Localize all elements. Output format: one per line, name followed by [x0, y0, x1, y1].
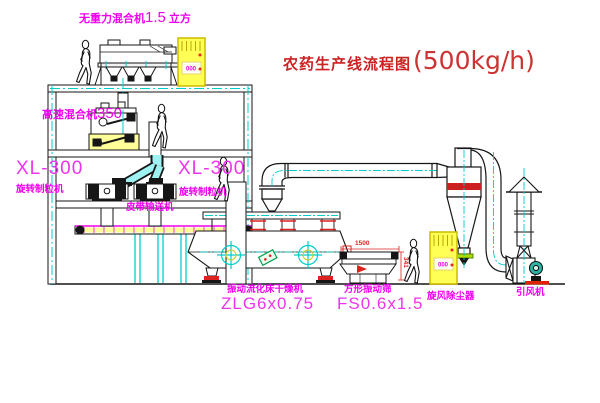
person-figure [77, 40, 92, 84]
label-fan: 引风机 [516, 288, 545, 298]
dryer-ports [250, 219, 336, 231]
granulator-chute-left [101, 208, 113, 226]
title-text: 农药生产线流程图 [283, 53, 411, 74]
page-title: 农药生产线流程图 (500kg/h) [283, 46, 535, 75]
dim-sieve-width: 1500 [355, 240, 369, 247]
label-high-speed-mixer: 高速混合机350 [42, 106, 122, 121]
label-granulator-left-model: XL-300 [16, 159, 83, 178]
granulator-left [86, 178, 128, 202]
fluid-bed-dryer [188, 212, 348, 283]
dim-sieve-height: 341 [402, 257, 409, 268]
cabinet-display: 000 [186, 67, 197, 73]
label-dryer-model: ZLG6x0.75 [221, 295, 314, 312]
cad-canvas: 000 000 农药生产线流程图 (500kg/h) 无重力混合机1.5 立方 … [0, 0, 600, 403]
elevator-column [226, 182, 246, 284]
label-granulator-right-name: 旋转制粒机 [179, 188, 227, 198]
gravity-free-mixer [95, 40, 178, 85]
induced-draft-fan [506, 246, 549, 285]
square-sieve [340, 246, 404, 283]
title-capacity: (500kg/h) [413, 46, 535, 75]
label-gravity-mixer: 无重力混合机1.5 立方 [79, 10, 191, 25]
cabinet-display: 000 [438, 263, 449, 269]
label-sieve-model: FS0.6x1.5 [337, 295, 424, 312]
label-cyclone: 旋风除尘器 [427, 292, 475, 302]
control-cabinet-top: 000 [178, 38, 205, 86]
dryer-feet [202, 268, 335, 283]
label-granulator-left-name: 旋转制粒机 [16, 185, 64, 195]
label-granulator-right-model: XL-300 [178, 159, 245, 178]
label-belt-conveyor: 皮带输送机 [126, 203, 174, 213]
granulator-right [134, 178, 176, 202]
exhaust-pipe [259, 164, 452, 212]
mixer-hoppers [106, 67, 156, 81]
control-cabinet-ground: 000 [430, 232, 457, 284]
